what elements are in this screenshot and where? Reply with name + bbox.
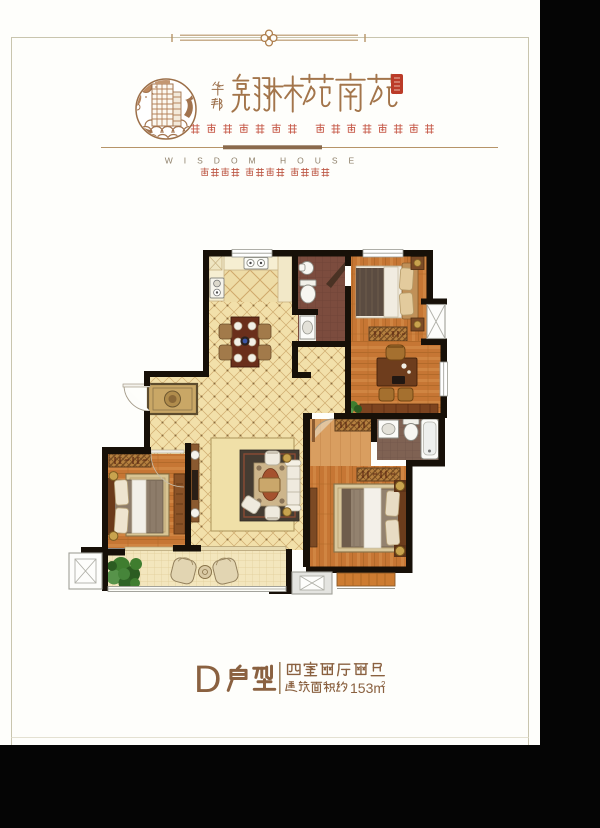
svg-text:153m: 153m (350, 680, 385, 696)
svg-text:2: 2 (381, 680, 386, 689)
svg-text:D: D (194, 659, 221, 701)
svg-text:WISDOM HOUSE: WISDOM HOUSE (165, 156, 365, 166)
